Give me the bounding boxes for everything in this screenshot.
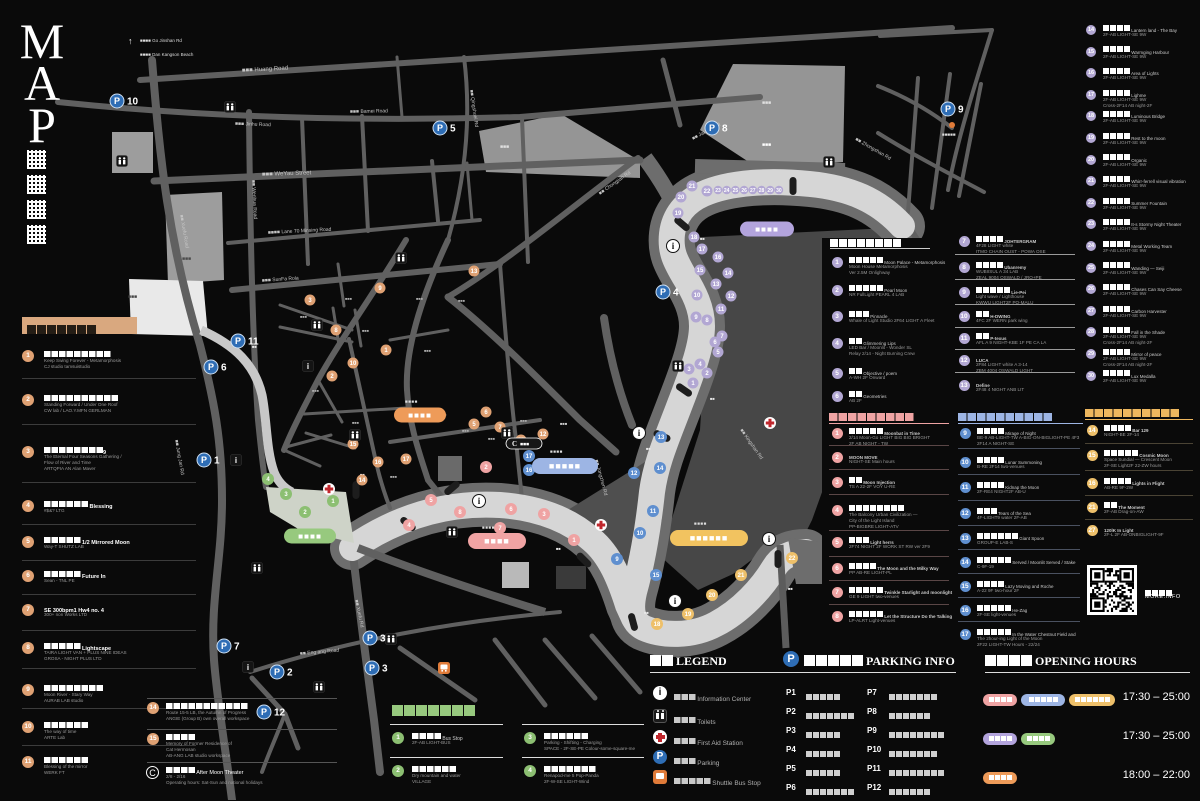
svg-text:■■■: ■■■ — [128, 294, 137, 300]
svg-text:■■■: ■■■ — [762, 100, 771, 106]
svg-text:14: 14 — [657, 466, 664, 472]
svg-text:19: 19 — [675, 211, 682, 217]
svg-text:■■: ■■ — [788, 586, 793, 591]
svg-text:20: 20 — [709, 593, 716, 599]
svg-text:■■■: ■■■ — [520, 442, 529, 448]
svg-text:2: 2 — [287, 668, 293, 679]
svg-text:P: P — [274, 667, 280, 677]
svg-text:29: 29 — [767, 188, 773, 194]
svg-text:P: P — [660, 287, 666, 297]
svg-text:10: 10 — [127, 97, 139, 108]
svg-text:■■■■■: ■■■■■ — [942, 132, 956, 137]
svg-text:■■■: ■■■ — [416, 297, 424, 301]
svg-text:10: 10 — [350, 361, 357, 367]
svg-text:■■■: ■■■ — [762, 142, 771, 148]
svg-text:15: 15 — [350, 442, 357, 448]
svg-text:■■■: ■■■ — [424, 349, 432, 353]
svg-text:P: P — [114, 96, 120, 106]
svg-text:■■■■: ■■■■ — [482, 525, 495, 530]
svg-text:16: 16 — [526, 468, 533, 474]
svg-text:P: P — [367, 633, 373, 643]
svg-text:12: 12 — [728, 294, 735, 300]
svg-text:16: 16 — [715, 255, 722, 261]
svg-text:21: 21 — [689, 184, 696, 190]
svg-text:■■■■■: ■■■■■ — [549, 461, 581, 471]
svg-text:■■■: ■■■ — [390, 475, 398, 479]
svg-text:■■■: ■■■ — [560, 421, 568, 426]
svg-text:■■■■: ■■■■ — [408, 411, 432, 420]
svg-text:■■■: ■■■ — [500, 144, 509, 150]
svg-text:17: 17 — [526, 454, 533, 460]
svg-text:13: 13 — [471, 269, 478, 275]
svg-text:13: 13 — [713, 282, 720, 288]
svg-text:13: 13 — [658, 435, 665, 441]
svg-text:14: 14 — [359, 478, 366, 484]
svg-text:1: 1 — [214, 456, 220, 467]
svg-text:3: 3 — [382, 664, 388, 675]
svg-text:10: 10 — [637, 531, 644, 537]
svg-text:22: 22 — [789, 556, 796, 562]
svg-text:22: 22 — [704, 189, 711, 195]
svg-text:■■: ■■ — [710, 396, 715, 401]
svg-text:P: P — [369, 663, 375, 673]
svg-text:16: 16 — [375, 460, 382, 466]
svg-text:P: P — [221, 641, 227, 651]
svg-text:■■■■: ■■■■ — [550, 449, 563, 454]
svg-text:■■■: ■■■ — [182, 256, 191, 262]
svg-text:■■■: ■■■ — [362, 329, 370, 333]
svg-text:■■■: ■■■ — [488, 437, 496, 441]
svg-text:6: 6 — [221, 363, 227, 374]
svg-text:18: 18 — [691, 235, 698, 241]
svg-text:24: 24 — [724, 188, 730, 194]
svg-text:11: 11 — [718, 307, 725, 313]
svg-text:26: 26 — [741, 188, 747, 194]
svg-text:■■: ■■ — [646, 446, 651, 451]
svg-text:15: 15 — [697, 268, 704, 274]
svg-text:28: 28 — [759, 188, 765, 194]
svg-text:i: i — [247, 663, 249, 672]
svg-text:■■■■: ■■■■ — [298, 532, 322, 541]
svg-text:■■■: ■■■ — [462, 429, 470, 433]
svg-text:8: 8 — [722, 124, 728, 135]
svg-text:11: 11 — [248, 337, 259, 348]
svg-text:14: 14 — [725, 271, 732, 277]
svg-text:■■■■: ■■■■ — [755, 225, 779, 234]
svg-text:9: 9 — [958, 105, 964, 116]
svg-text:↑: ↑ — [128, 36, 133, 46]
svg-text:■■■ Bamei Road: ■■■ Bamei Road — [350, 108, 388, 115]
svg-text:■■: ■■ — [556, 546, 561, 551]
svg-text:■■■: ■■■ — [520, 419, 528, 423]
svg-text:23: 23 — [715, 188, 721, 194]
svg-text:■■ Jung Jan Rd: ■■ Jung Jan Rd — [173, 439, 185, 475]
svg-text:P: P — [709, 123, 715, 133]
svg-text:■■■■ Go Jinshan Rd: ■■■■ Go Jinshan Rd — [140, 38, 182, 43]
svg-text:P: P — [208, 362, 214, 372]
svg-text:■■■■: ■■■■ — [405, 399, 418, 404]
svg-text:12: 12 — [274, 708, 286, 719]
svg-text:27: 27 — [750, 188, 756, 194]
svg-text:18: 18 — [654, 622, 661, 628]
svg-text:■■: ■■ — [700, 236, 705, 241]
svg-text:P: P — [235, 336, 241, 346]
svg-text:■■■■■■: ■■■■■■ — [690, 533, 729, 543]
svg-text:i: i — [307, 362, 309, 371]
svg-text:■■■■: ■■■■ — [694, 521, 707, 526]
svg-text:21: 21 — [738, 573, 745, 579]
svg-text:P: P — [261, 707, 267, 717]
svg-text:■■■: ■■■ — [458, 299, 466, 303]
svg-text:12: 12 — [540, 432, 547, 438]
svg-text:10: 10 — [694, 293, 701, 299]
svg-text:11: 11 — [650, 509, 657, 515]
svg-text:■■■■ Dan Kangson Beach: ■■■■ Dan Kangson Beach — [140, 52, 194, 57]
svg-text:25: 25 — [733, 188, 739, 194]
svg-text:■■■■: ■■■■ — [484, 536, 510, 546]
svg-text:■■■: ■■■ — [352, 421, 360, 425]
svg-text:P: P — [201, 455, 207, 465]
svg-text:■■ Qingshuei Rd: ■■ Qingshuei Rd — [468, 89, 479, 127]
svg-text:3: 3 — [380, 634, 386, 645]
svg-text:■■■: ■■■ — [300, 315, 308, 319]
svg-text:15: 15 — [653, 573, 660, 579]
svg-text:■■■: ■■■ — [345, 297, 353, 301]
svg-text:5: 5 — [450, 124, 456, 135]
svg-text:■■ Eng ang Road: ■■ Eng ang Road — [300, 648, 340, 657]
svg-text:P: P — [945, 104, 951, 114]
svg-text:12: 12 — [631, 471, 638, 477]
svg-text:17: 17 — [699, 247, 706, 253]
svg-text:19: 19 — [685, 612, 692, 618]
svg-text:i: i — [235, 456, 237, 465]
svg-text:■■: ■■ — [644, 610, 649, 615]
svg-text:P: P — [437, 123, 443, 133]
svg-text:30: 30 — [776, 188, 782, 194]
svg-text:20: 20 — [678, 195, 685, 201]
svg-text:17: 17 — [403, 457, 410, 463]
svg-text:4: 4 — [673, 288, 679, 299]
svg-text:C: C — [512, 440, 517, 448]
svg-text:7: 7 — [234, 642, 240, 653]
svg-text:■■■: ■■■ — [312, 389, 320, 393]
svg-text:■■■ Jinhu Road: ■■■ Jinhu Road — [235, 121, 271, 128]
